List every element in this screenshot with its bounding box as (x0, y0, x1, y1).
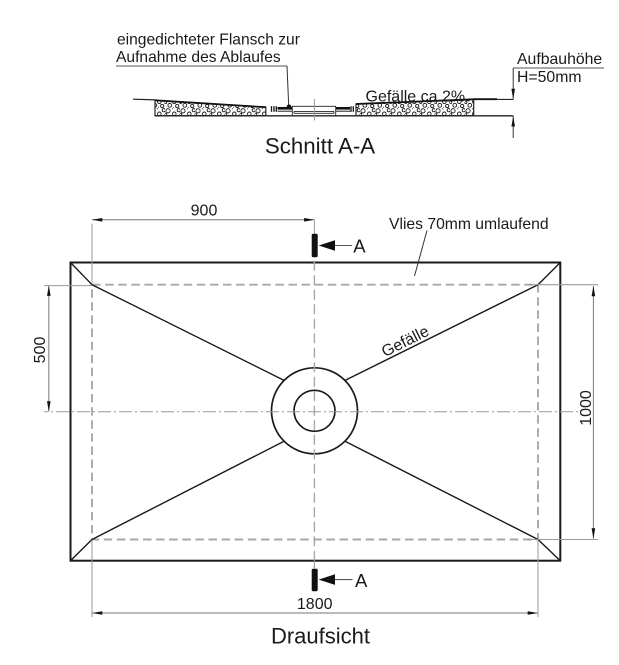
svg-text:Aufbauhöhe: Aufbauhöhe (517, 51, 602, 68)
svg-text:Schnitt A-A: Schnitt A-A (265, 133, 375, 158)
svg-text:H=50mm: H=50mm (517, 69, 582, 86)
svg-text:A: A (353, 236, 366, 257)
svg-text:A: A (355, 570, 368, 591)
svg-text:Draufsicht: Draufsicht (271, 624, 370, 649)
svg-text:Vlies 70mm umlaufend: Vlies 70mm umlaufend (389, 216, 549, 233)
svg-text:Gefälle: Gefälle (379, 323, 432, 361)
svg-text:900: 900 (191, 203, 218, 220)
svg-text:1800: 1800 (297, 596, 333, 613)
svg-text:500: 500 (32, 337, 49, 364)
svg-text:Aufnahme des Ablaufes: Aufnahme des Ablaufes (116, 49, 281, 66)
svg-text:eingedichteter Flansch zur: eingedichteter Flansch zur (117, 32, 300, 49)
svg-text:1000: 1000 (578, 390, 595, 426)
svg-text:Gefälle ca.2%: Gefälle ca.2% (366, 88, 466, 105)
